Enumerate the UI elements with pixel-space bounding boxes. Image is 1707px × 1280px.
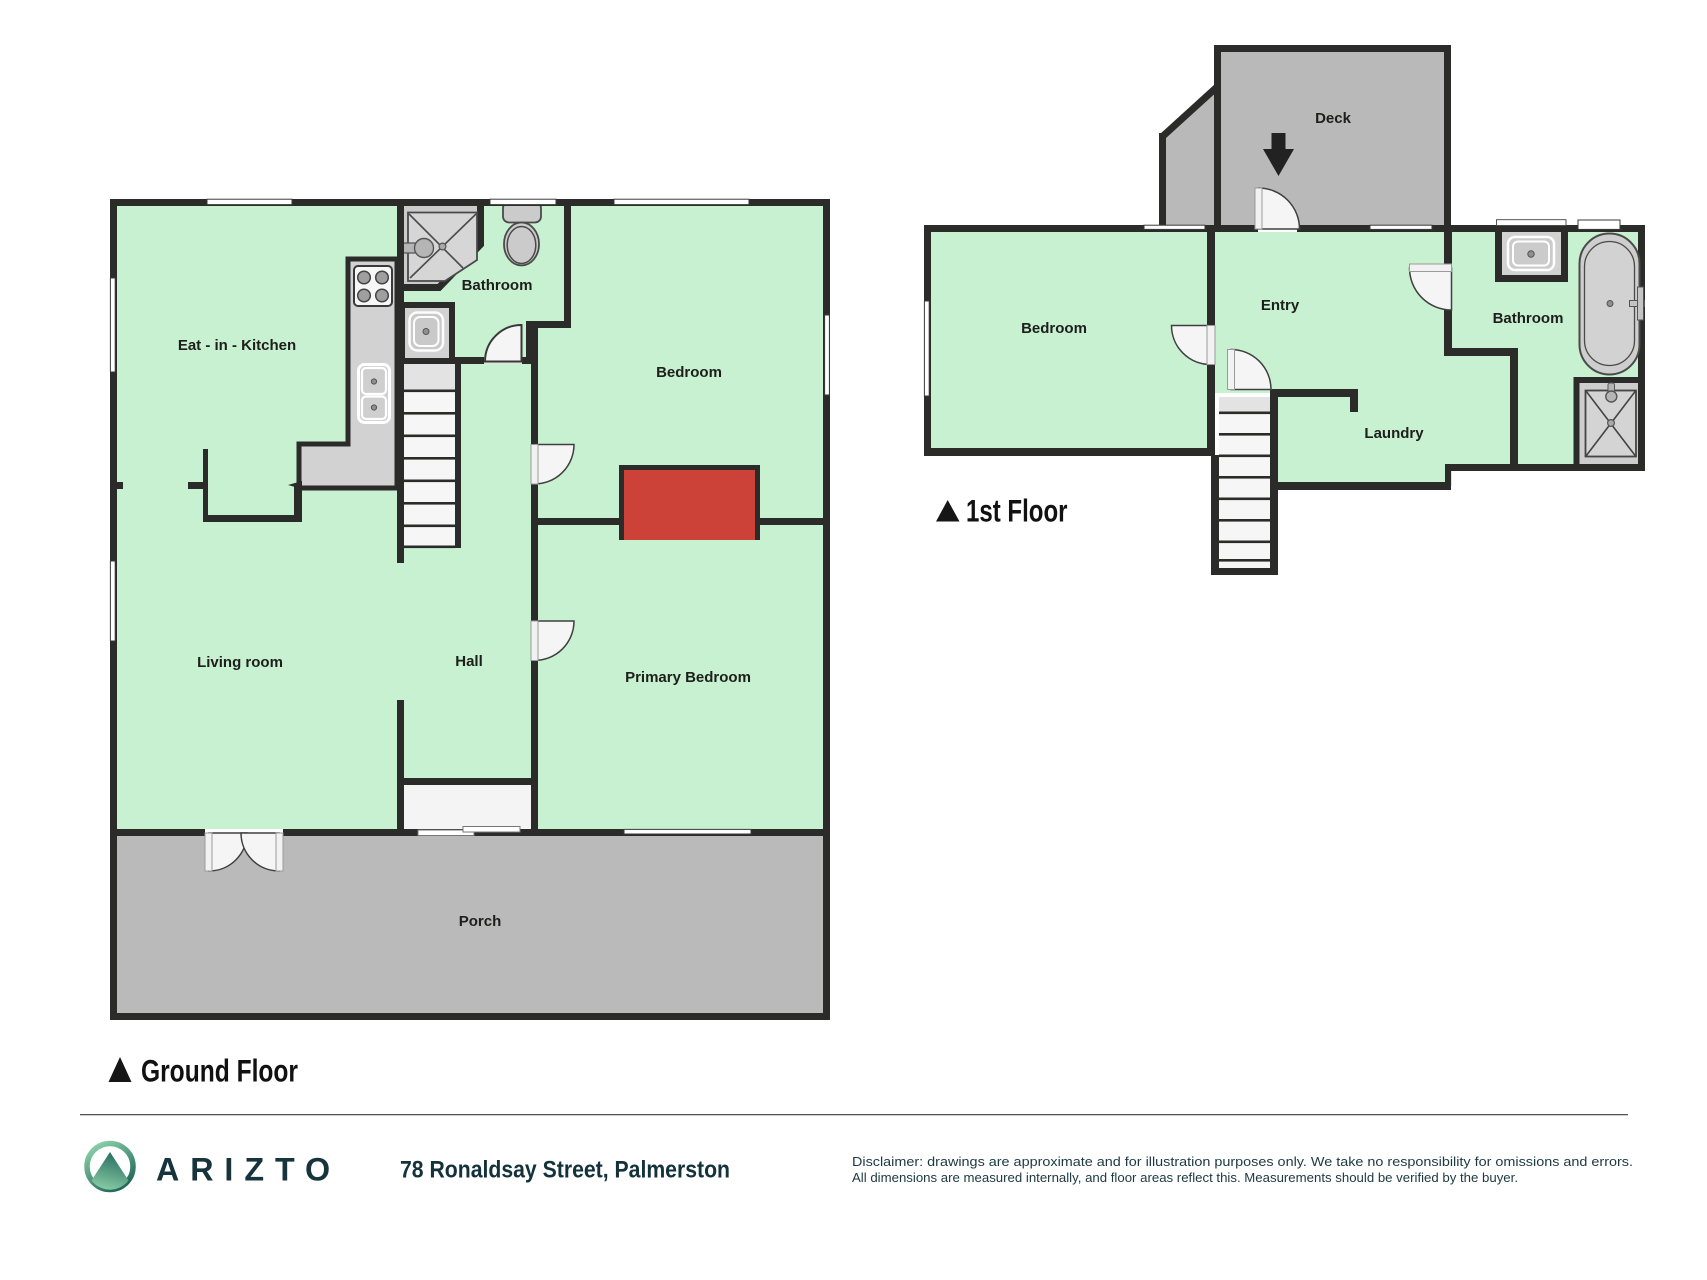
svg-text:Eat - in - Kitchen: Eat - in - Kitchen bbox=[178, 337, 296, 354]
svg-text:Porch: Porch bbox=[459, 913, 502, 930]
svg-text:Entry: Entry bbox=[1261, 297, 1300, 314]
svg-text:Disclaimer: drawings are appro: Disclaimer: drawings are approximate and… bbox=[852, 1154, 1633, 1169]
svg-text:Ground Floor: Ground Floor bbox=[141, 1053, 298, 1089]
svg-text:Bedroom: Bedroom bbox=[1021, 320, 1087, 337]
svg-text:Bathroom: Bathroom bbox=[462, 277, 533, 294]
svg-text:Bedroom: Bedroom bbox=[656, 364, 722, 381]
svg-text:All dimensions are measured in: All dimensions are measured internally, … bbox=[852, 1170, 1518, 1185]
svg-text:78 Ronaldsay Street, Palmersto: 78 Ronaldsay Street, Palmerston bbox=[400, 1157, 730, 1184]
svg-text:Deck: Deck bbox=[1315, 110, 1352, 127]
svg-text:Primary Bedroom: Primary Bedroom bbox=[625, 669, 751, 686]
svg-text:Hall: Hall bbox=[455, 653, 483, 670]
svg-text:Bathroom: Bathroom bbox=[1493, 310, 1564, 327]
svg-text:Laundry: Laundry bbox=[1364, 425, 1424, 442]
svg-text:Living room: Living room bbox=[197, 654, 283, 671]
svg-text:1st Floor: 1st Floor bbox=[966, 493, 1068, 529]
svg-text:ARIZTO: ARIZTO bbox=[156, 1152, 341, 1188]
